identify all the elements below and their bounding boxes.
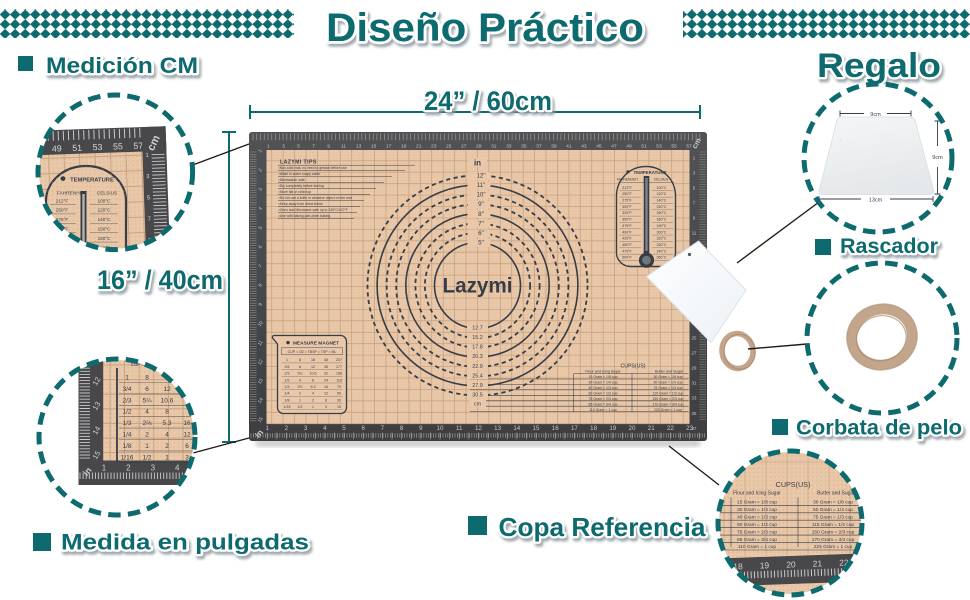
svg-text:160°C: 160°C [98, 236, 112, 241]
svg-text:29: 29 [692, 366, 697, 371]
svg-text:300°F: 300°F [622, 205, 631, 209]
svg-text:6: 6 [185, 443, 189, 450]
svg-text:CUPS(US): CUPS(US) [620, 363, 645, 369]
svg-text:1/2: 1/2 [122, 409, 131, 416]
svg-text:1/16: 1/16 [284, 405, 291, 409]
svg-text:CUPS(US): CUPS(US) [776, 480, 811, 489]
svg-text:2/3: 2/3 [285, 372, 290, 376]
svg-text:41: 41 [566, 144, 572, 150]
svg-text:35: 35 [521, 144, 527, 150]
svg-text:16: 16 [324, 385, 328, 389]
svg-text:120°C: 120°C [98, 208, 112, 213]
svg-text:212°F: 212°F [56, 198, 69, 203]
svg-text:7: 7 [381, 425, 385, 432]
svg-text:cm: cm [474, 402, 482, 408]
svg-text:2: 2 [126, 464, 131, 473]
svg-text:TEMPERATURE: TEMPERATURE [633, 170, 666, 175]
svg-text:1: 1 [265, 425, 269, 432]
svg-text:▪Oven and Microwave safe up to: ▪Oven and Microwave safe up to 240°C/470… [279, 208, 348, 212]
svg-text:Diseño Práctico: Diseño Práctico [326, 6, 644, 50]
svg-text:275°F: 275°F [622, 199, 631, 203]
svg-text:3: 3 [325, 405, 327, 409]
svg-text:1/2: 1/2 [298, 405, 303, 409]
svg-text:55: 55 [671, 144, 677, 150]
svg-text:220°C: 220°C [657, 237, 667, 241]
svg-text:17: 17 [571, 425, 578, 432]
svg-text:57: 57 [133, 141, 143, 151]
svg-text:200°C: 200°C [657, 230, 667, 234]
svg-text:10.6: 10.6 [310, 372, 317, 376]
svg-text:8: 8 [400, 425, 404, 432]
svg-text:49: 49 [626, 144, 632, 150]
svg-text:47: 47 [611, 144, 617, 150]
svg-text:50 Gram = 1/4 cup: 50 Gram = 1/4 cup [813, 507, 853, 513]
svg-text:237: 237 [336, 358, 342, 362]
svg-text:15.2: 15.2 [472, 335, 483, 341]
svg-text:9cm: 9cm [870, 112, 881, 118]
svg-text:16” / 40cm: 16” / 40cm [97, 265, 223, 295]
svg-text:▪Keep away from direct flame: ▪Keep away from direct flame [279, 202, 323, 206]
svg-text:120°C: 120°C [657, 192, 667, 196]
svg-text:24: 24 [324, 378, 328, 382]
svg-text:53: 53 [656, 144, 662, 150]
svg-text:1: 1 [267, 144, 270, 150]
svg-text:6: 6 [145, 386, 149, 393]
svg-text:1: 1 [299, 398, 301, 402]
svg-text:6": 6" [478, 230, 484, 237]
svg-text:1/16: 1/16 [121, 454, 134, 461]
svg-text:85 Gram = 3/4 cup: 85 Gram = 3/4 cup [588, 402, 617, 406]
svg-text:11: 11 [341, 144, 346, 150]
svg-text:16: 16 [183, 420, 191, 427]
svg-text:3/4: 3/4 [122, 386, 131, 393]
svg-text:475°F: 475°F [622, 249, 631, 253]
svg-text:6: 6 [361, 425, 365, 432]
svg-text:24” / 60cm: 24” / 60cm [424, 86, 552, 116]
svg-text:in: in [474, 159, 481, 168]
svg-text:9: 9 [327, 144, 330, 150]
svg-text:15: 15 [371, 144, 377, 150]
svg-text:212°F: 212°F [622, 186, 631, 190]
svg-text:375°F: 375°F [622, 224, 631, 228]
svg-text:7: 7 [312, 144, 315, 150]
svg-text:30 Gram = 1/4 cup: 30 Gram = 1/4 cup [737, 507, 777, 513]
svg-text:15: 15 [337, 405, 341, 409]
svg-text:16: 16 [552, 425, 559, 432]
svg-text:4: 4 [323, 425, 327, 432]
svg-text:9: 9 [419, 425, 423, 432]
svg-text:2: 2 [165, 443, 169, 450]
svg-text:31: 31 [692, 381, 697, 386]
svg-text:12: 12 [163, 386, 171, 393]
svg-text:31: 31 [491, 144, 497, 150]
svg-text:55: 55 [113, 141, 123, 151]
svg-text:1: 1 [286, 358, 288, 362]
svg-text:27: 27 [692, 351, 697, 356]
svg-text:150 Gram = 2/3 cup: 150 Gram = 2/3 cup [652, 397, 683, 401]
svg-text:75 Gram = 2/3 cup: 75 Gram = 2/3 cup [737, 529, 777, 535]
svg-text:4: 4 [175, 464, 180, 473]
svg-text:32: 32 [324, 372, 328, 376]
svg-text:39: 39 [551, 144, 557, 150]
svg-text:1: 1 [125, 375, 129, 382]
svg-text:59: 59 [337, 392, 341, 396]
svg-text:TEMPERATURE: TEMPERATURE [70, 178, 114, 184]
svg-text:40 Gram = 1/3 cup: 40 Gram = 1/3 cup [588, 386, 617, 390]
svg-text:30: 30 [337, 398, 341, 402]
svg-text:100°C: 100°C [657, 186, 667, 190]
svg-text:5.3: 5.3 [311, 385, 316, 389]
svg-text:25: 25 [692, 336, 697, 341]
svg-text:21: 21 [416, 144, 422, 150]
svg-text:250°F: 250°F [622, 192, 631, 196]
svg-text:13cm: 13cm [869, 198, 883, 204]
svg-text:49: 49 [52, 143, 62, 153]
svg-text:CELSIUS: CELSIUS [654, 177, 669, 181]
svg-text:8: 8 [165, 409, 169, 416]
svg-text:450°F: 450°F [622, 243, 631, 247]
svg-text:350°F: 350°F [56, 245, 69, 250]
svg-text:425°F: 425°F [622, 237, 631, 241]
svg-text:1/3: 1/3 [122, 420, 131, 427]
svg-text:5¼: 5¼ [142, 397, 152, 404]
svg-text:325°F: 325°F [56, 236, 69, 241]
svg-text:9": 9" [478, 201, 484, 208]
svg-text:10.6: 10.6 [161, 397, 174, 404]
svg-text:4: 4 [145, 409, 149, 416]
svg-text:12.7: 12.7 [472, 326, 483, 332]
svg-text:20: 20 [629, 425, 636, 432]
svg-text:5.3: 5.3 [162, 420, 171, 427]
svg-text:325°F: 325°F [622, 211, 631, 215]
svg-text:1/8: 1/8 [122, 443, 131, 450]
svg-text:6: 6 [325, 398, 327, 402]
svg-text:110 Gram = 1 cup: 110 Gram = 1 cup [589, 408, 617, 412]
svg-text:▪Wash in warm soapy water: ▪Wash in warm soapy water [279, 172, 322, 176]
svg-text:21: 21 [813, 558, 823, 568]
svg-text:45: 45 [596, 144, 602, 150]
svg-text:4: 4 [165, 432, 169, 439]
svg-text:400°F: 400°F [622, 230, 631, 234]
svg-text:60 Gram = 1/2 cup: 60 Gram = 1/2 cup [737, 522, 777, 528]
svg-text:53: 53 [92, 142, 102, 152]
svg-text:Medida en pulgadas: Medida en pulgadas [61, 530, 309, 555]
svg-text:15 Gram = 1/8 cup: 15 Gram = 1/8 cup [588, 375, 617, 379]
svg-text:4: 4 [312, 392, 314, 396]
svg-text:3/4: 3/4 [285, 365, 290, 369]
svg-text:11: 11 [692, 231, 697, 236]
svg-text:Lazymi: Lazymi [443, 275, 513, 298]
svg-text:20: 20 [786, 559, 796, 569]
svg-text:1/3: 1/3 [285, 385, 290, 389]
svg-text:Flour and Icing Sugar: Flour and Icing Sugar [585, 369, 621, 373]
svg-text:225 Gram = 1 cup: 225 Gram = 1 cup [814, 544, 853, 550]
svg-text:19: 19 [401, 144, 407, 150]
svg-text:85 Gram = 3/4 cup: 85 Gram = 3/4 cup [737, 537, 777, 543]
svg-text:7": 7" [478, 220, 484, 227]
svg-text:160°C: 160°C [657, 211, 667, 215]
svg-text:40 Gram = 1/3 cup: 40 Gram = 1/3 cup [737, 514, 777, 520]
svg-text:16: 16 [311, 358, 315, 362]
svg-text:▪Dry completely before storing: ▪Dry completely before storing [279, 184, 324, 188]
svg-text:8: 8 [145, 375, 149, 382]
svg-text:350°F: 350°F [622, 218, 631, 222]
svg-text:170 Gram = 3/4 cup: 170 Gram = 3/4 cup [812, 537, 855, 543]
svg-text:21: 21 [648, 425, 655, 432]
svg-text:▪Do not use a knife or abrasiv: ▪Do not use a knife or abrasive object o… [279, 196, 352, 200]
svg-text:30 Gram = 1/8 cup: 30 Gram = 1/8 cup [813, 500, 853, 506]
svg-text:8: 8 [312, 378, 314, 382]
svg-text:6: 6 [299, 365, 301, 369]
svg-text:CUP = OZ = TBSP = TSP = ML: CUP = OZ = TBSP = TSP = ML [288, 350, 337, 354]
svg-text:2: 2 [285, 425, 289, 432]
svg-text:Butter and Sugar: Butter and Sugar [817, 491, 855, 497]
svg-text:15: 15 [533, 425, 540, 432]
svg-text:12: 12 [324, 392, 328, 396]
svg-text:260°C: 260°C [657, 256, 667, 260]
svg-text:8": 8" [478, 211, 484, 218]
svg-text:500°F: 500°F [622, 256, 631, 260]
svg-text:MEASURE MAGNET: MEASURE MAGNET [293, 341, 339, 347]
svg-text:14: 14 [513, 425, 520, 432]
svg-text:100°C: 100°C [98, 198, 112, 203]
svg-text:12: 12 [311, 365, 315, 369]
svg-text:1: 1 [102, 464, 107, 473]
svg-text:Rascador: Rascador [840, 235, 938, 258]
svg-text:79: 79 [337, 385, 341, 389]
svg-text:1/4: 1/4 [285, 392, 290, 396]
svg-text:19: 19 [609, 425, 616, 432]
svg-text:3: 3 [185, 454, 189, 461]
svg-text:18: 18 [733, 561, 743, 571]
svg-text:2⅔: 2⅔ [142, 420, 152, 427]
svg-text:9cm: 9cm [932, 155, 943, 161]
svg-text:150 Gram = 2/3 cup: 150 Gram = 2/3 cup [812, 529, 855, 535]
svg-text:48: 48 [324, 358, 328, 362]
svg-text:170 Gram = 3/4 cup: 170 Gram = 3/4 cup [652, 402, 683, 406]
svg-text:2: 2 [145, 432, 149, 439]
svg-text:5": 5" [478, 240, 484, 247]
svg-text:2⅔: 2⅔ [298, 385, 303, 389]
svg-text:140°C: 140°C [657, 199, 667, 203]
svg-text:▪Store flat or rolled up: ▪Store flat or rolled up [279, 190, 312, 194]
svg-text:Flour and Icing Sugar: Flour and Icing Sugar [733, 491, 781, 497]
svg-text:13: 13 [356, 144, 362, 150]
svg-text:37: 37 [536, 144, 542, 150]
svg-text:12: 12 [475, 425, 482, 432]
svg-text:1: 1 [145, 443, 149, 450]
svg-text:1/2: 1/2 [142, 454, 151, 461]
svg-text:27: 27 [461, 144, 467, 150]
svg-text:30.5: 30.5 [472, 393, 483, 399]
svg-text:20.3: 20.3 [472, 354, 483, 360]
svg-text:15 Gram = 1/8 cup: 15 Gram = 1/8 cup [737, 500, 777, 506]
svg-text:33: 33 [506, 144, 512, 150]
svg-text:177: 177 [336, 365, 342, 369]
svg-text:30 Gram = 1/4 cup: 30 Gram = 1/4 cup [588, 381, 617, 385]
svg-text:75 Gram = 1/3 cup: 75 Gram = 1/3 cup [813, 514, 853, 520]
svg-text:150°C: 150°C [98, 227, 112, 232]
svg-text:75 Gram = 1/3 cup: 75 Gram = 1/3 cup [653, 386, 682, 390]
svg-text:240°C: 240°C [657, 249, 667, 253]
svg-text:10: 10 [437, 425, 444, 432]
svg-text:Corbata de pelo: Corbata de pelo [796, 417, 962, 440]
svg-text:1/8: 1/8 [285, 398, 290, 402]
svg-text:43: 43 [581, 144, 587, 150]
svg-text:19: 19 [760, 560, 770, 570]
svg-text:13: 13 [494, 425, 501, 432]
svg-text:Medición CM: Medición CM [46, 53, 198, 78]
svg-text:51: 51 [72, 143, 82, 153]
svg-text:36: 36 [324, 365, 328, 369]
svg-text:22: 22 [667, 425, 674, 432]
svg-text:Butter and Sugar: Butter and Sugar [655, 369, 684, 373]
svg-text:50 Gram = 1/4 cup: 50 Gram = 1/4 cup [653, 381, 682, 385]
svg-text:115 Gram = 1/2 cup: 115 Gram = 1/2 cup [812, 522, 855, 528]
svg-text:▪Use with baking pan when baki: ▪Use with baking pan when baking [279, 214, 331, 218]
svg-text:225 Gram = 1 cup: 225 Gram = 1 cup [654, 408, 682, 412]
svg-text:11": 11" [477, 182, 486, 189]
svg-text:12: 12 [183, 432, 191, 439]
svg-text:3: 3 [304, 425, 308, 432]
svg-text:5: 5 [297, 144, 300, 150]
svg-text:39: 39 [692, 441, 697, 446]
svg-text:22.9: 22.9 [472, 364, 483, 370]
svg-text:30 Gram = 1/8 cup: 30 Gram = 1/8 cup [653, 375, 682, 379]
svg-text:1/2: 1/2 [285, 378, 290, 382]
svg-text:150°C: 150°C [657, 205, 667, 209]
svg-text:180°C: 180°C [657, 218, 667, 222]
svg-text:37: 37 [692, 426, 697, 431]
svg-text:Regalo: Regalo [817, 47, 941, 85]
svg-text:2: 2 [312, 398, 314, 402]
svg-text:3: 3 [282, 144, 285, 150]
svg-text:Copa Referencia: Copa Referencia [499, 512, 707, 542]
svg-text:75 Gram = 2/3 cup: 75 Gram = 2/3 cup [588, 397, 617, 401]
svg-text:17: 17 [386, 144, 392, 150]
svg-text:250°F: 250°F [56, 208, 69, 213]
svg-text:1/4: 1/4 [122, 432, 131, 439]
svg-text:230°C: 230°C [657, 243, 667, 247]
svg-text:140°C: 140°C [98, 217, 112, 222]
svg-text:27.9: 27.9 [472, 383, 483, 389]
svg-text:8: 8 [299, 358, 301, 362]
svg-text:115 Gram = 1/2 cup: 115 Gram = 1/2 cup [653, 391, 684, 395]
svg-text:118: 118 [336, 378, 342, 382]
svg-text:2/3: 2/3 [122, 397, 131, 404]
svg-text:60 Gram = 1/2 cup: 60 Gram = 1/2 cup [588, 391, 617, 395]
svg-text:12": 12" [476, 173, 485, 180]
svg-text:FAHRENHEIT: FAHRENHEIT [617, 177, 638, 181]
svg-text:3: 3 [151, 464, 156, 473]
svg-text:51: 51 [641, 144, 647, 150]
svg-text:18: 18 [590, 425, 597, 432]
svg-text:29: 29 [476, 144, 482, 150]
svg-text:10": 10" [476, 192, 485, 199]
svg-text:110 Gram = 1 cup: 110 Gram = 1 cup [738, 544, 777, 550]
svg-text:LAZYMI TIPS: LAZYMI TIPS [280, 160, 317, 166]
svg-text:190°C: 190°C [657, 224, 667, 228]
svg-text:35: 35 [692, 411, 697, 416]
svg-text:1: 1 [312, 405, 314, 409]
svg-text:25.4: 25.4 [472, 373, 483, 379]
svg-text:33: 33 [692, 396, 697, 401]
svg-text:5: 5 [342, 425, 346, 432]
svg-text:158: 158 [336, 372, 342, 376]
svg-text:17.8: 17.8 [472, 345, 483, 351]
svg-text:▪Dishwasher safe: ▪Dishwasher safe [279, 178, 305, 182]
svg-text:▪Non-stick mat, no need to gre: ▪Non-stick mat, no need to grease before… [279, 166, 347, 170]
svg-text:11: 11 [456, 425, 463, 432]
svg-text:2: 2 [299, 392, 301, 396]
svg-text:25: 25 [446, 144, 452, 150]
svg-text:4: 4 [299, 378, 301, 382]
svg-text:1: 1 [165, 454, 169, 461]
svg-text:CELSIUS: CELSIUS [97, 190, 118, 196]
svg-text:23: 23 [431, 144, 437, 150]
